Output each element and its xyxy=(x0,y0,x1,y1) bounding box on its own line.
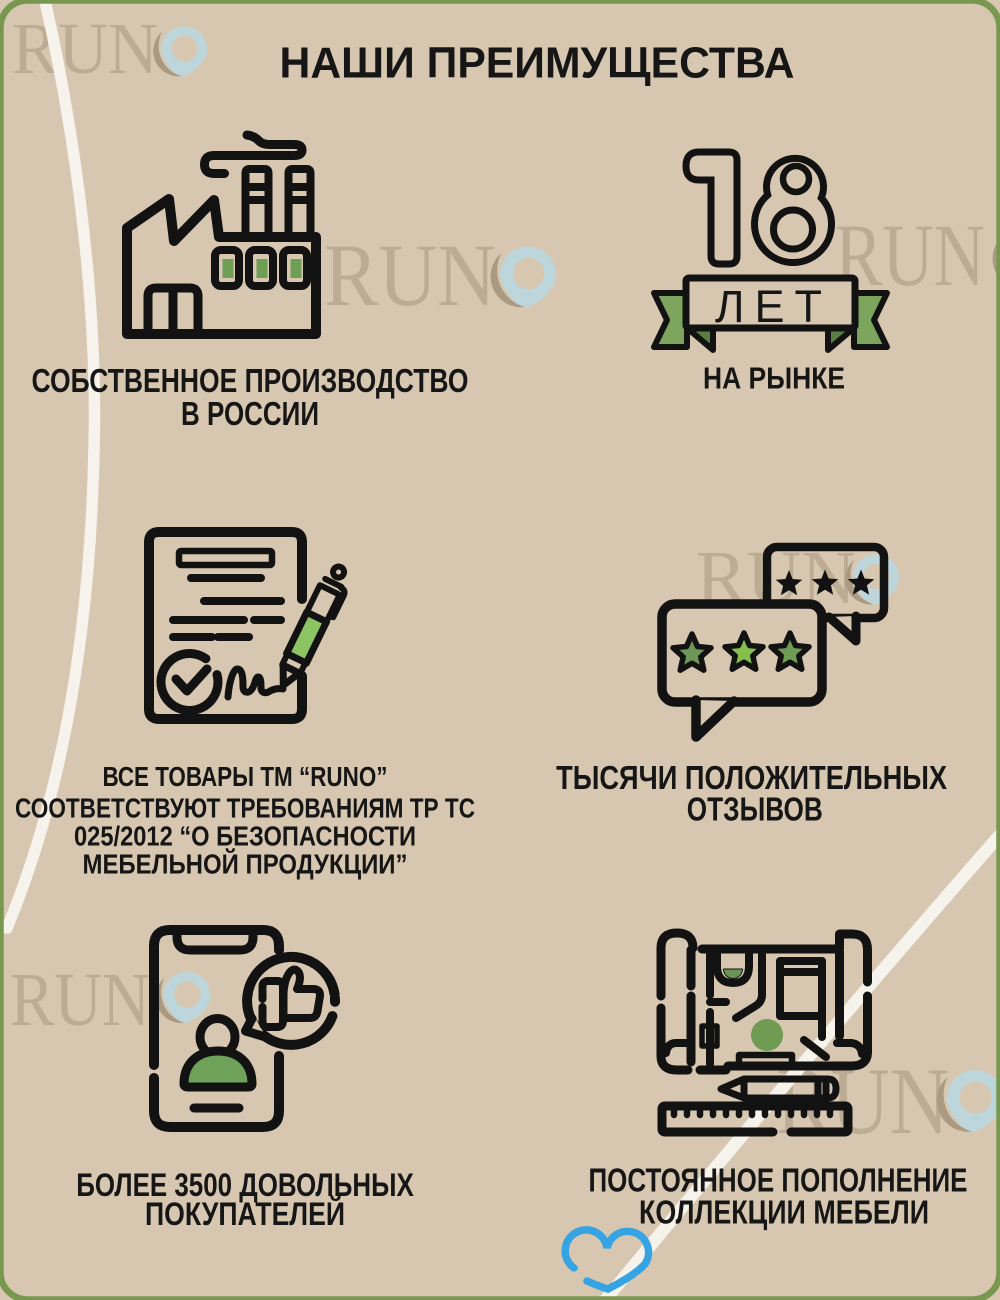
svg-text:025/2012 “О БЕЗОПАСНОСТИ: 025/2012 “О БЕЗОПАСНОСТИ xyxy=(74,821,416,852)
svg-text:RUN: RUN xyxy=(324,227,496,325)
svg-text:КОЛЛЕКЦИИ МЕБЕЛИ: КОЛЛЕКЦИИ МЕБЕЛИ xyxy=(639,1194,929,1231)
svg-text:ОТЗЫВОВ: ОТЗЫВОВ xyxy=(687,791,823,828)
svg-text:ПОКУПАТЕЛЕЙ: ПОКУПАТЕЛЕЙ xyxy=(145,1194,345,1232)
svg-text:НАШИ ПРЕИМУЩЕСТВА: НАШИ ПРЕИМУЩЕСТВА xyxy=(280,39,795,88)
svg-text:ЛЕТ: ЛЕТ xyxy=(715,281,822,332)
svg-text:В РОССИИ: В РОССИИ xyxy=(181,395,319,432)
svg-text:RUN: RUN xyxy=(12,8,158,89)
svg-text:НА РЫНКЕ: НА РЫНКЕ xyxy=(703,361,845,396)
svg-text:СОБСТВЕННОЕ ПРОИЗВОДСТВО: СОБСТВЕННОЕ ПРОИЗВОДСТВО xyxy=(32,362,469,399)
svg-text:МЕБЕЛЬНОЙ ПРОДУКЦИИ”: МЕБЕЛЬНОЙ ПРОДУКЦИИ” xyxy=(83,849,408,880)
svg-text:RUN: RUN xyxy=(10,958,150,1042)
svg-text:СООТВЕТСТВУЮТ ТРЕБОВАНИЯМ ТР Т: СООТВЕТСТВУЮТ ТРЕБОВАНИЯМ ТР ТС xyxy=(15,793,475,824)
svg-text:ВСЕ ТОВАРЫ ТМ “RUNO”: ВСЕ ТОВАРЫ ТМ “RUNO” xyxy=(103,761,388,792)
